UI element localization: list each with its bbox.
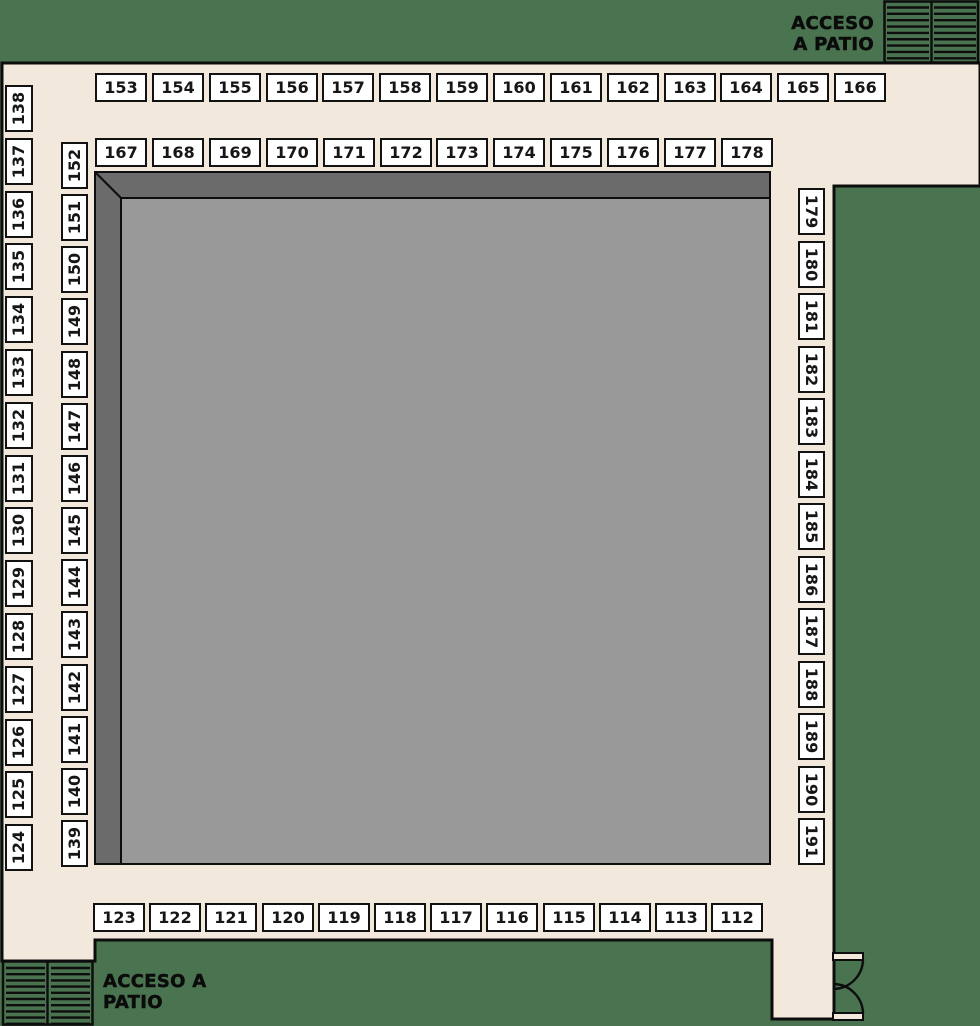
booth-137: 137 xyxy=(5,138,33,185)
booth-154: 154 xyxy=(152,73,204,102)
booth-label: 131 xyxy=(10,462,29,495)
booth-label: 129 xyxy=(10,567,29,600)
booth-label: 188 xyxy=(802,668,821,701)
booth-label: 119 xyxy=(327,908,360,927)
booth-label: 127 xyxy=(10,673,29,706)
booth-153: 153 xyxy=(95,73,147,102)
booth-155: 155 xyxy=(209,73,261,102)
booth-150: 150 xyxy=(61,246,88,293)
booth-label: 113 xyxy=(664,908,697,927)
booth-133: 133 xyxy=(5,349,33,396)
booth-label: 117 xyxy=(439,908,472,927)
booth-label: 143 xyxy=(65,618,84,651)
booth-label: 136 xyxy=(10,198,29,231)
booth-label: 181 xyxy=(802,300,821,333)
booth-label: 178 xyxy=(730,143,763,162)
booth-157: 157 xyxy=(322,73,374,102)
booth-172: 172 xyxy=(380,138,432,167)
booth-label: 144 xyxy=(65,566,84,599)
booth-117: 117 xyxy=(430,903,482,932)
booth-149: 149 xyxy=(61,298,88,345)
booth-142: 142 xyxy=(61,664,88,711)
booth-label: 156 xyxy=(275,78,308,97)
booth-label: 126 xyxy=(10,726,29,759)
booth-label: 185 xyxy=(802,510,821,543)
booth-187: 187 xyxy=(798,608,825,655)
booth-label: 116 xyxy=(495,908,528,927)
booth-label: 115 xyxy=(552,908,585,927)
booth-175: 175 xyxy=(550,138,602,167)
booth-label: 151 xyxy=(65,201,84,234)
booth-label: 183 xyxy=(802,405,821,438)
booth-188: 188 xyxy=(798,661,825,708)
booth-164: 164 xyxy=(720,73,772,102)
booth-163: 163 xyxy=(664,73,716,102)
booth-128: 128 xyxy=(5,613,33,660)
booth-156: 156 xyxy=(266,73,318,102)
booth-186: 186 xyxy=(798,556,825,603)
booth-127: 127 xyxy=(5,666,33,713)
booth-134: 134 xyxy=(5,296,33,343)
booth-161: 161 xyxy=(550,73,602,102)
booth-145: 145 xyxy=(61,507,88,554)
booth-123: 123 xyxy=(93,903,145,932)
floor-plan: ACCESO A PATIO ACCESO A PATIO 1531541551… xyxy=(0,0,980,1026)
booth-112: 112 xyxy=(711,903,763,932)
booth-label: 170 xyxy=(275,143,308,162)
booth-152: 152 xyxy=(61,142,88,189)
stairs-bottom-left-icon xyxy=(3,962,93,1025)
booth-120: 120 xyxy=(262,903,314,932)
double-door-icon xyxy=(833,953,863,1020)
booth-162: 162 xyxy=(607,73,659,102)
booth-135: 135 xyxy=(5,243,33,290)
booth-label: 182 xyxy=(802,353,821,386)
booth-185: 185 xyxy=(798,503,825,550)
booth-118: 118 xyxy=(374,903,426,932)
booth-label: 130 xyxy=(10,514,29,547)
booth-label: 123 xyxy=(102,908,135,927)
booth-label: 137 xyxy=(10,145,29,178)
booth-label: 155 xyxy=(218,78,251,97)
booth-label: 134 xyxy=(10,303,29,336)
booth-label: 145 xyxy=(65,514,84,547)
booth-180: 180 xyxy=(798,241,825,288)
booth-159: 159 xyxy=(436,73,488,102)
booth-147: 147 xyxy=(61,403,88,450)
booth-label: 138 xyxy=(10,92,29,125)
booth-146: 146 xyxy=(61,455,88,502)
booth-189: 189 xyxy=(798,713,825,760)
booth-label: 139 xyxy=(65,827,84,860)
booth-label: 179 xyxy=(802,195,821,228)
booth-136: 136 xyxy=(5,191,33,238)
stairs-top-right-icon xyxy=(885,2,979,63)
booth-label: 154 xyxy=(161,78,194,97)
floorplan-graphic xyxy=(0,0,980,1026)
booth-label: 189 xyxy=(802,720,821,753)
booth-151: 151 xyxy=(61,194,88,241)
booth-label: 121 xyxy=(214,908,247,927)
booth-label: 161 xyxy=(559,78,592,97)
booth-131: 131 xyxy=(5,455,33,502)
booth-label: 152 xyxy=(65,149,84,182)
booth-113: 113 xyxy=(655,903,707,932)
booth-label: 141 xyxy=(65,723,84,756)
booth-label: 146 xyxy=(65,462,84,495)
booth-160: 160 xyxy=(493,73,545,102)
booth-label: 172 xyxy=(389,143,422,162)
booth-label: 120 xyxy=(271,908,304,927)
booth-166: 166 xyxy=(834,73,886,102)
booth-138: 138 xyxy=(5,85,33,132)
booth-139: 139 xyxy=(61,820,88,867)
booth-label: 124 xyxy=(10,831,29,864)
booth-label: 177 xyxy=(673,143,706,162)
booth-148: 148 xyxy=(61,351,88,398)
booth-label: 165 xyxy=(786,78,819,97)
booth-170: 170 xyxy=(266,138,318,167)
booth-label: 153 xyxy=(104,78,137,97)
booth-173: 173 xyxy=(436,138,488,167)
booth-label: 175 xyxy=(559,143,592,162)
booth-label: 173 xyxy=(445,143,478,162)
booth-129: 129 xyxy=(5,560,33,607)
booth-143: 143 xyxy=(61,611,88,658)
booth-132: 132 xyxy=(5,402,33,449)
booth-168: 168 xyxy=(152,138,204,167)
booth-116: 116 xyxy=(486,903,538,932)
booth-115: 115 xyxy=(543,903,595,932)
acceso-a-patio-label-top: ACCESO A PATIO xyxy=(791,13,874,55)
booth-label: 148 xyxy=(65,358,84,391)
booth-169: 169 xyxy=(209,138,261,167)
booth-label: 140 xyxy=(65,775,84,808)
booth-label: 169 xyxy=(218,143,251,162)
booth-label: 159 xyxy=(445,78,478,97)
booth-label: 157 xyxy=(331,78,364,97)
booth-158: 158 xyxy=(379,73,431,102)
booth-182: 182 xyxy=(798,346,825,393)
booth-label: 164 xyxy=(729,78,762,97)
booth-178: 178 xyxy=(721,138,773,167)
booth-141: 141 xyxy=(61,716,88,763)
booth-label: 125 xyxy=(10,778,29,811)
booth-label: 122 xyxy=(158,908,191,927)
booth-179: 179 xyxy=(798,188,825,235)
booth-label: 163 xyxy=(673,78,706,97)
booth-label: 176 xyxy=(616,143,649,162)
booth-label: 190 xyxy=(802,773,821,806)
booth-125: 125 xyxy=(5,771,33,818)
booth-184: 184 xyxy=(798,451,825,498)
booth-183: 183 xyxy=(798,398,825,445)
booth-label: 171 xyxy=(332,143,365,162)
booth-190: 190 xyxy=(798,766,825,813)
booth-119: 119 xyxy=(318,903,370,932)
booth-label: 166 xyxy=(843,78,876,97)
access-line: ACCESO A xyxy=(103,971,207,992)
booth-label: 114 xyxy=(608,908,641,927)
booth-171: 171 xyxy=(323,138,375,167)
acceso-a-patio-label-bottom: ACCESO A PATIO xyxy=(103,971,207,1013)
booth-144: 144 xyxy=(61,559,88,606)
booth-130: 130 xyxy=(5,507,33,554)
booth-114: 114 xyxy=(599,903,651,932)
booth-label: 135 xyxy=(10,250,29,283)
booth-label: 160 xyxy=(502,78,535,97)
access-line: A PATIO xyxy=(791,34,874,55)
booth-label: 132 xyxy=(10,409,29,442)
booth-label: 147 xyxy=(65,410,84,443)
booth-140: 140 xyxy=(61,768,88,815)
booth-label: 133 xyxy=(10,356,29,389)
booth-label: 142 xyxy=(65,671,84,704)
booth-177: 177 xyxy=(664,138,716,167)
booth-label: 168 xyxy=(161,143,194,162)
booth-label: 174 xyxy=(502,143,535,162)
booth-176: 176 xyxy=(607,138,659,167)
booth-label: 128 xyxy=(10,620,29,653)
booth-label: 150 xyxy=(65,253,84,286)
booth-126: 126 xyxy=(5,719,33,766)
booth-122: 122 xyxy=(149,903,201,932)
booth-label: 167 xyxy=(104,143,137,162)
booth-label: 118 xyxy=(383,908,416,927)
booth-label: 112 xyxy=(720,908,753,927)
booth-label: 186 xyxy=(802,563,821,596)
booth-label: 191 xyxy=(802,825,821,858)
booth-165: 165 xyxy=(777,73,829,102)
booth-174: 174 xyxy=(493,138,545,167)
booth-label: 187 xyxy=(802,615,821,648)
booth-label: 158 xyxy=(388,78,421,97)
access-line: PATIO xyxy=(103,992,207,1013)
booth-181: 181 xyxy=(798,293,825,340)
central-area xyxy=(121,198,770,864)
booth-191: 191 xyxy=(798,818,825,865)
booth-label: 149 xyxy=(65,305,84,338)
booth-121: 121 xyxy=(205,903,257,932)
booth-167: 167 xyxy=(95,138,147,167)
booth-124: 124 xyxy=(5,824,33,871)
access-line: ACCESO xyxy=(791,13,874,34)
booth-label: 162 xyxy=(616,78,649,97)
booth-label: 184 xyxy=(802,458,821,491)
booth-label: 180 xyxy=(802,248,821,281)
